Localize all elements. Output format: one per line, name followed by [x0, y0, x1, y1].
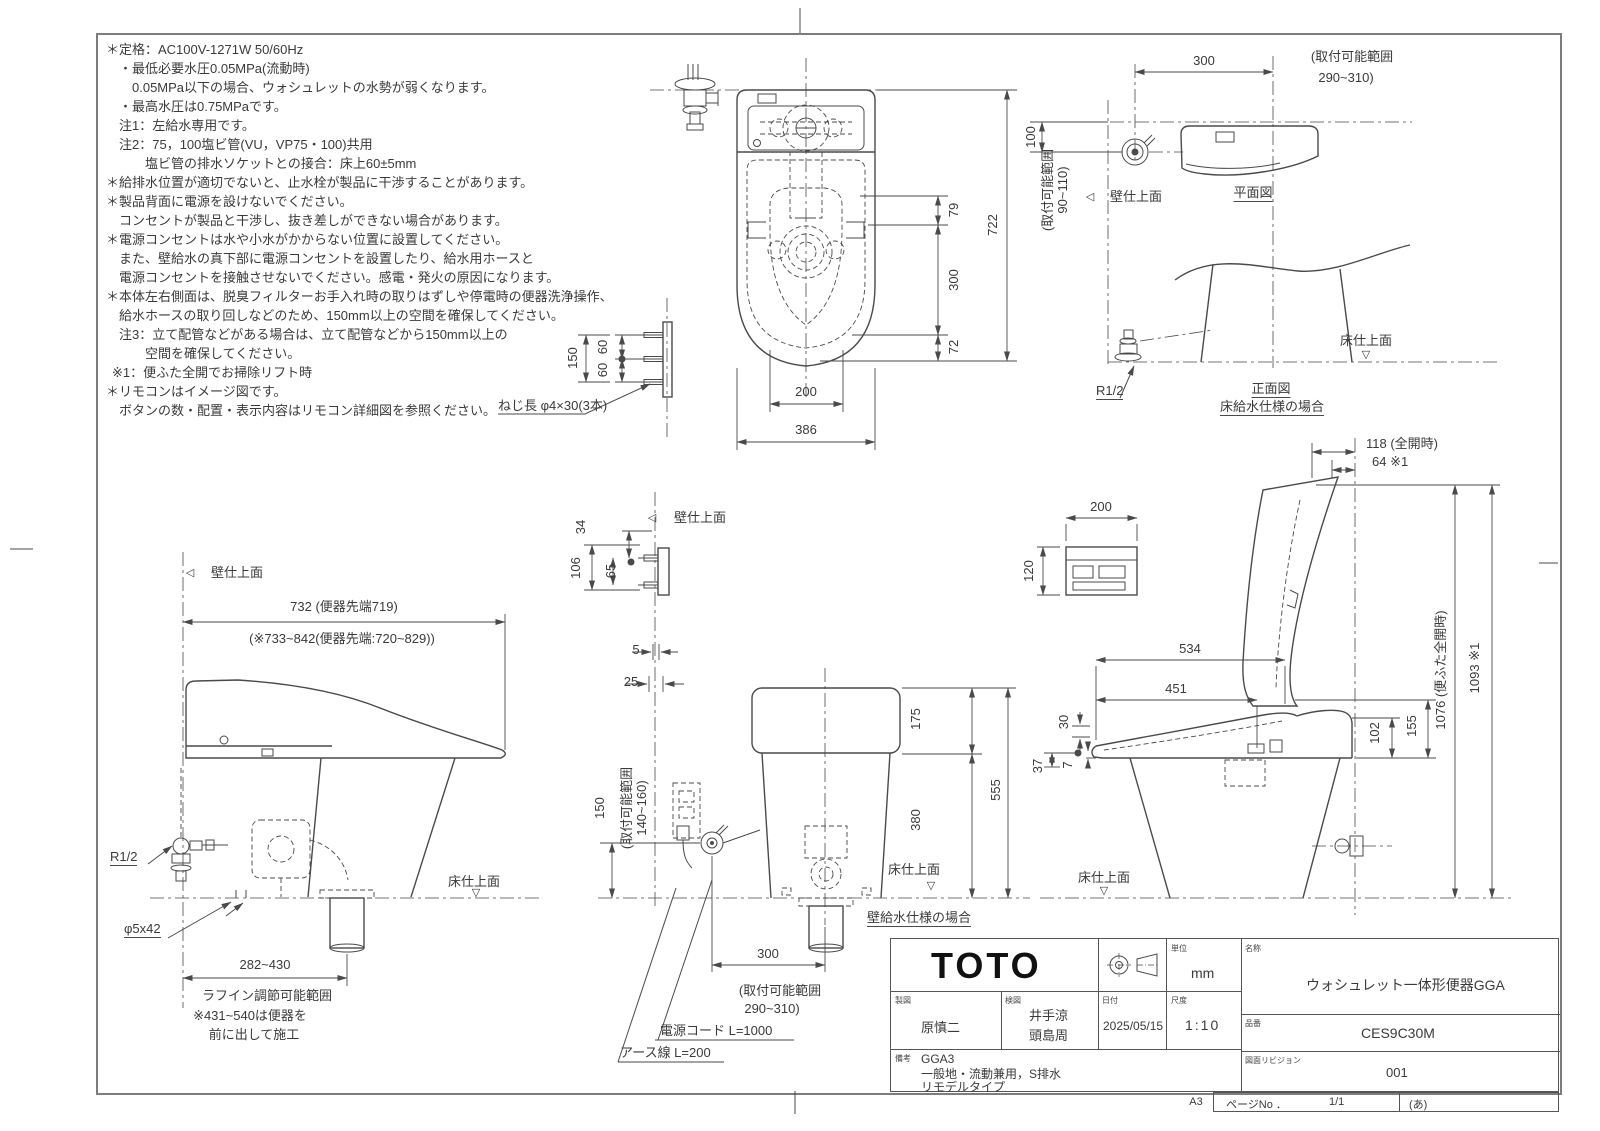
drawing-sheet: ＊定格：AC100V-1271W 50/60Hz ・最低必要水圧0.05MPa(…	[0, 0, 1600, 1131]
range-90-110: (取付可能範囲90~110)	[1040, 149, 1070, 231]
dim-60-lower: 60	[596, 363, 610, 377]
title-block: TOTO 単位 mm 製図 原慎二 検図 井手涼 頭島周 日付 2025/05/…	[890, 938, 1559, 1092]
dim-722: 722	[986, 214, 1000, 236]
dim-150-screws: 150	[566, 347, 580, 369]
dim-733-842: (※733~842(便器先端:720~829))	[249, 632, 435, 646]
remarks-label: 備考	[895, 1053, 911, 1064]
left-side-view	[148, 552, 540, 1008]
part-number: CES9C30M	[1361, 1025, 1435, 1041]
dim-451: 451	[1165, 682, 1187, 696]
wall-face-label-left: 壁仕上面	[211, 566, 263, 580]
page-number-label: ページNo ．	[1226, 1096, 1287, 1112]
floor-face-marker-icon: ▽	[927, 879, 935, 893]
dim-200-remote: 200	[1090, 500, 1112, 514]
unit-value: mm	[1191, 965, 1214, 981]
dim-64: 64 ※1	[1372, 455, 1408, 469]
revision-value: 001	[1386, 1065, 1408, 1080]
power-cord-label: 電源コード L=1000	[660, 1024, 772, 1038]
range-290-310-line2: 290~310)	[1318, 71, 1373, 85]
roughin-range-label: ラフイン調節可能範囲	[202, 989, 332, 1003]
scale-value: 1:10	[1185, 1017, 1220, 1033]
cistern-plan-view	[1030, 56, 1412, 368]
wall-face-label: 壁仕上面	[1110, 190, 1162, 204]
note-line: 0.05MPa以下の場合、ウォシュレットの水勢が弱くなります。	[132, 78, 606, 97]
spec-notes: ＊定格：AC100V-1271W 50/60Hz ・最低必要水圧0.05MPa(…	[106, 40, 606, 420]
dim-300-plan: 300	[947, 269, 961, 291]
dim-534: 534	[1179, 642, 1201, 656]
dim-60-upper: 60	[596, 340, 610, 354]
range-290-310-drain-line1: (取付可能範囲	[739, 984, 821, 998]
earth-wire-label: アース線 L=200	[620, 1046, 711, 1060]
screw-length-label: ねじ長 φ4×30(3本)	[498, 399, 607, 413]
r12-label-front: R1/2	[1096, 384, 1123, 400]
floor-face-marker-icon: ▽	[1362, 348, 1370, 362]
footer-divider	[1399, 1093, 1400, 1111]
note-line: ＊本体左右側面は、脱臭フィルターお手入れ時の取りはずしや停電時の便器洗浄操作、	[106, 287, 606, 306]
phi-5x42-label: φ5x42	[124, 922, 161, 938]
stop-valve-plan	[675, 64, 718, 130]
dim-106: 106	[569, 557, 583, 579]
note-line: 注1：左給水専用です。	[119, 116, 606, 135]
floor-face-label-front: 床仕上面	[1340, 334, 1392, 348]
remarks-line3: リモデルタイプ	[921, 1078, 1005, 1095]
dim-380: 380	[909, 809, 923, 831]
checker-label: 検図	[1005, 995, 1021, 1006]
scale-label: 尺度	[1171, 995, 1187, 1006]
note-line: また、壁給水の真下部に電源コンセントを設置したり、給水用ホースと	[119, 249, 606, 268]
wall-face-marker-icon: ◁	[648, 511, 656, 525]
r12-label-left: R1/2	[110, 850, 137, 866]
range-290-310-line1: (取付可能範囲	[1311, 50, 1393, 64]
toilet-plan-view	[650, 58, 1017, 450]
dim-25: 25	[624, 675, 638, 689]
drafter-label: 製図	[895, 995, 911, 1006]
dim-5: 5	[632, 643, 639, 657]
floor-face-label-right: 床仕上面	[1078, 871, 1130, 885]
third-angle-projection-icon	[1107, 951, 1161, 979]
dim-118: 118 (全開時)	[1366, 437, 1438, 451]
unit-label: 単位	[1171, 943, 1187, 954]
note-line: ＊電源コンセントは水や小水がかからない位置に設置してください。	[106, 230, 606, 249]
note-line: ＊給排水位置が適切でないと、止水栓が製品に干渉することがあります。	[106, 173, 606, 192]
dim-120-remote: 120	[1022, 560, 1036, 582]
note-line: 給水ホースの取り回しなどのため、150mm以上の空間を確保してください。	[119, 306, 606, 325]
note-line: ・最高水圧は0.75MPaです。	[119, 97, 606, 116]
drafter-name: 原慎二	[921, 1017, 960, 1036]
note-line: ＊定格：AC100V-1271W 50/60Hz	[106, 40, 606, 59]
dim-555: 555	[989, 779, 1003, 801]
dim-1076: 1076 (便ふた全開時)	[1434, 610, 1448, 729]
note-line: 注3：立て配管などがある場合は、立て配管などから150mm以上の	[119, 325, 606, 344]
dim-34: 34	[574, 520, 588, 534]
dim-72: 72	[947, 340, 961, 354]
note-line: 電源コンセントを接触させないでください。感電・発火の原因になります。	[119, 268, 606, 287]
dim-300-drain: 300	[757, 947, 779, 961]
dim-65: 65	[604, 564, 618, 578]
dim-100: 100	[1024, 126, 1038, 148]
dim-282-430: 282~430	[240, 958, 291, 972]
range-140-160: (取付可能範囲140~160)	[619, 767, 649, 849]
dim-300-cistern: 300	[1193, 54, 1215, 68]
dim-79: 79	[947, 203, 961, 217]
dim-200-plan: 200	[795, 385, 817, 399]
paper-size-label: A3	[1189, 1095, 1202, 1109]
dim-386: 386	[795, 423, 817, 437]
wall-face-marker-icon: ◁	[1086, 190, 1094, 204]
checker-name-2: 頭島周	[1029, 1025, 1068, 1044]
dim-732: 732 (便器先端719)	[290, 600, 398, 614]
floor-face-marker-icon: ▽	[472, 886, 480, 900]
dim-175: 175	[909, 708, 923, 730]
dim-37: 37	[1031, 759, 1045, 773]
dim-155: 155	[1405, 715, 1419, 737]
note-line: 注2：75，100塩ビ管(VU，VP75・100)共用	[119, 135, 606, 154]
front-view-title: 正面図	[1251, 382, 1290, 398]
page-footer: ページNo ． 1/1 (あ)	[1213, 1092, 1559, 1112]
note-line: ※1：便ふた全開でお掃除リフト時	[112, 363, 606, 382]
wall-supply-caption: 壁給水仕様の場合	[867, 911, 971, 927]
floor-face-label-rear: 床仕上面	[888, 863, 940, 877]
plan-view-title: 平面図	[1233, 186, 1272, 202]
dim-150-supply: 150	[593, 797, 607, 819]
wall-face-label-rear: 壁仕上面	[674, 511, 726, 525]
remarks-line1: GGA3	[921, 1052, 954, 1066]
revision-label: 図面リビジョン	[1245, 1055, 1301, 1066]
page-number-value: 1/1	[1329, 1096, 1344, 1108]
floor-face-marker-icon: ▽	[1100, 884, 1108, 898]
dim-102: 102	[1368, 722, 1382, 744]
wall-face-marker-icon: ◁	[186, 566, 194, 580]
note-line: ＊製品背面に電源を設けないでください。	[106, 192, 606, 211]
range-290-310-drain-line2: 290~310)	[744, 1002, 799, 1016]
date-value: 2025/05/15	[1103, 1019, 1163, 1033]
dim-1093: 1093 ※1	[1468, 643, 1482, 694]
name-label: 名称	[1245, 943, 1261, 954]
roughin-note-line1: ※431~540は便器を	[193, 1009, 307, 1023]
sheet-code: (あ)	[1409, 1096, 1427, 1112]
note-line: 空間を確保してください。	[145, 344, 606, 363]
part-label: 品番	[1245, 1018, 1261, 1029]
date-label: 日付	[1102, 995, 1118, 1006]
dim-30: 30	[1057, 715, 1071, 729]
note-line: 塩ビ管の排水ソケットとの接合：床上60±5mm	[145, 154, 606, 173]
product-name: ウォシュレット一体形便器GGA	[1306, 975, 1505, 995]
front-view-subtitle: 床給水仕様の場合	[1220, 400, 1324, 416]
toto-logo: TOTO	[931, 945, 1042, 987]
note-line: ・最低必要水圧0.05MPa(流動時)	[119, 59, 606, 78]
front-view-floor-supply	[1108, 245, 1500, 398]
checker-name-1: 井手涼	[1029, 1005, 1068, 1024]
note-line: コンセントが製品と干渉し、抜き差しができない場合があります。	[119, 211, 606, 230]
dim-7: 7	[1061, 761, 1075, 768]
roughin-note-line2: 前に出して施工	[209, 1028, 300, 1042]
